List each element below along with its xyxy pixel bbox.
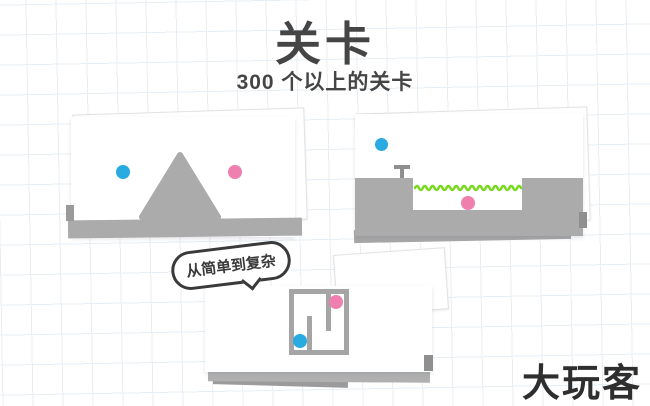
card-edge-tab [66, 205, 74, 221]
level-card-triangle [64, 108, 304, 242]
terrain-bottom [355, 210, 583, 236]
pink-ball [461, 196, 475, 210]
level-card-maze: 从简单到复杂 [205, 286, 432, 372]
level-preview-pit [355, 114, 583, 236]
card-edge-tab [424, 355, 433, 371]
level-preview-maze [205, 286, 432, 372]
page-subtitle: 300 个以上的关卡 [0, 66, 650, 96]
pink-ball [228, 165, 242, 179]
level-preview-triangle [71, 117, 295, 237]
page-title: 关卡 [0, 8, 650, 74]
speech-bubble-text: 从简单到复杂 [185, 253, 276, 281]
ground-floor [68, 218, 302, 239]
maze-obstacle [289, 289, 349, 355]
brand-logo: 大玩客 [522, 352, 642, 406]
level-card-pit [351, 109, 591, 243]
blue-ball [293, 334, 307, 348]
blue-ball [116, 165, 130, 179]
pink-ball [329, 295, 343, 309]
card-edge-tab [579, 212, 587, 228]
rope-wavy-line [414, 183, 524, 193]
blue-ball [375, 138, 388, 151]
promo-screen: 关卡 300 个以上的关卡 [0, 0, 650, 406]
triangle-obstacle [138, 151, 222, 221]
